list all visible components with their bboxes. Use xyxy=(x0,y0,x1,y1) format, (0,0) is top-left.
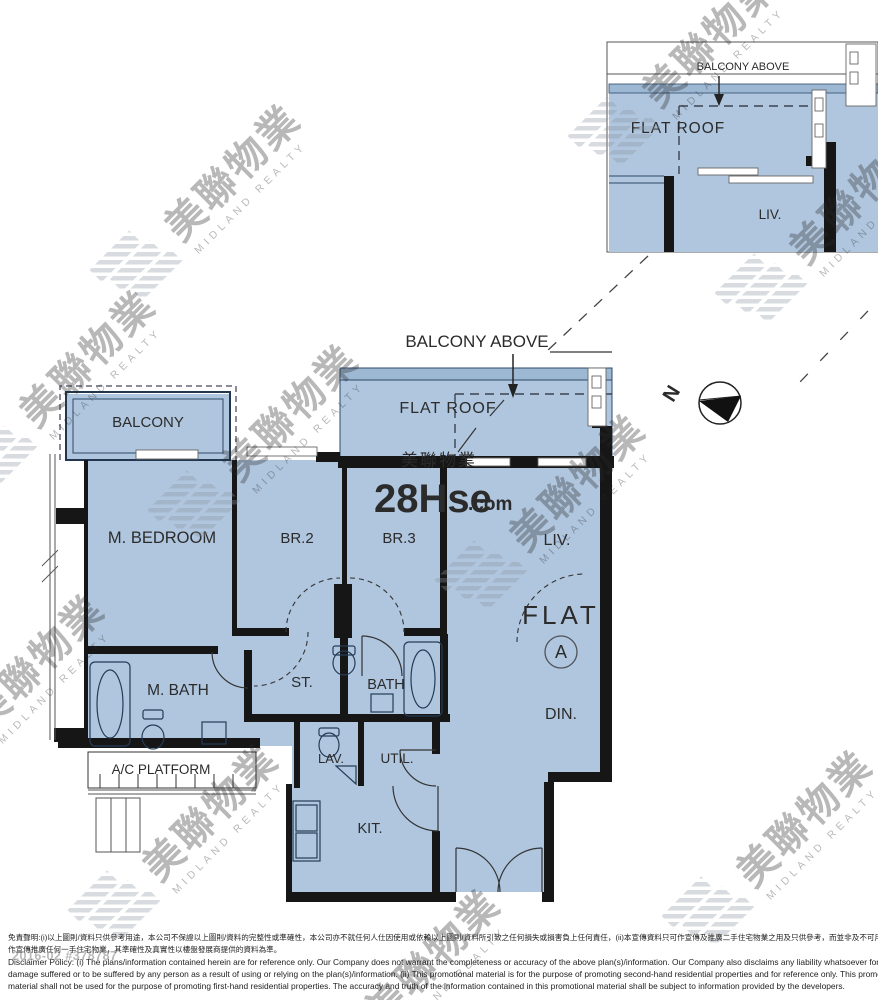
disclaimer-en-line3: material shall not be used for the purpo… xyxy=(8,980,874,992)
reference-code-watermark: 2016-02 #378787 xyxy=(12,949,118,963)
disclaimer-en-line1: Disclaimer Policy: (i) The plans/informa… xyxy=(8,956,874,968)
balcony-above-band xyxy=(340,368,612,380)
compass-north-label: N xyxy=(659,382,685,406)
compass: N xyxy=(659,382,741,424)
disclaimer-en-line2: damage suffered or to be suffered by any… xyxy=(8,968,874,980)
label-ac-platform: A/C PLATFORM xyxy=(112,762,211,777)
midland-watermark xyxy=(662,735,878,965)
floorplan-page: 美聯物業 MIDLAND REALTY BALCONY ABOVE FLAT R… xyxy=(0,0,878,1000)
label-bedroom-3: BR.3 xyxy=(382,530,415,547)
disclaimer-cn-line2: 作宣傳推廣任何一手住宅物業，其準確性及真實性以樓盤發展商提供的資料為準。 xyxy=(8,944,874,956)
label-balcony: BALCONY xyxy=(112,414,184,431)
label-flat-roof: FLAT ROOF xyxy=(399,400,496,417)
label-store: ST. xyxy=(291,674,313,691)
midland-watermark xyxy=(90,89,320,319)
label-flat-letter: A xyxy=(555,642,567,662)
label-utility: UTIL. xyxy=(380,751,413,766)
label-dining: DIN. xyxy=(545,706,577,723)
label-balcony-above: BALCONY ABOVE xyxy=(405,332,548,351)
label-kitchen: KIT. xyxy=(358,821,383,837)
label-lavatory: LAV. xyxy=(318,751,344,766)
red-watermark: 美聯物業 xyxy=(401,451,477,470)
label-master-bath: M. BATH xyxy=(147,682,209,699)
inset-label-living: LIV. xyxy=(759,207,782,222)
label-bedroom-2: BR.2 xyxy=(280,530,313,547)
disclaimer: 免責聲明:(i)以上圖則/資料只供參考用途，本公司不保證以上圖則/資料的完整性或… xyxy=(8,932,874,993)
label-bath: BATH xyxy=(367,677,405,693)
hse-watermark-suffix: .com xyxy=(468,494,512,515)
label-flat-word: FLAT xyxy=(522,600,600,630)
disclaimer-cn-line1: 免責聲明:(i)以上圖則/資料只供參考用途，本公司不保證以上圖則/資料的完整性或… xyxy=(8,932,874,944)
floor-plan: 美聯物業 MIDLAND REALTY BALCONY ABOVE FLAT R… xyxy=(0,0,878,1000)
